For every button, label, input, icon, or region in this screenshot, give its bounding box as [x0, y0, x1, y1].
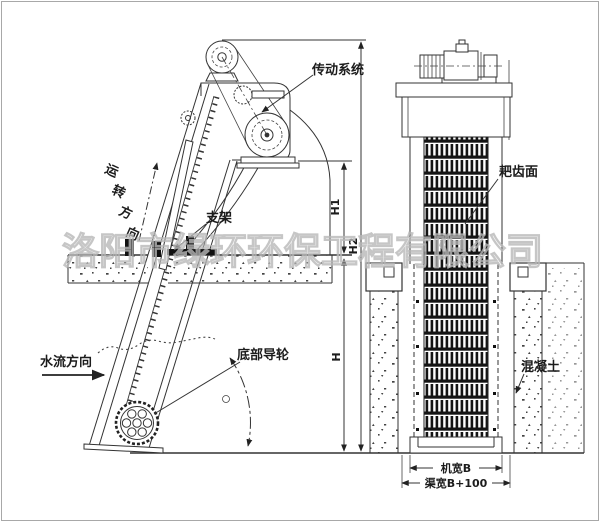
dim-h1: H1 [329, 199, 342, 216]
label-drive-system: 传动系统 [311, 62, 364, 78]
technical-drawing: H1 H H2 传动系统 支架 底部导轮 水流方向 运 转 方 向 [0, 0, 600, 522]
dim-channel-width: 渠宽B+100 [425, 476, 488, 490]
rake-teeth-face [424, 137, 488, 437]
label-rake-face: 耙齿面 [499, 164, 538, 180]
label-bottom-guide-wheel: 底部导轮 [237, 347, 289, 363]
label-concrete: 混凝土 [521, 359, 560, 375]
dim-h: H [330, 352, 343, 361]
screen-body [410, 137, 502, 453]
bottom-guide-wheel [116, 402, 158, 444]
company-watermark: 洛阳市绿环环保工程有限公司 [62, 230, 543, 273]
label-support: 支架 [205, 210, 232, 226]
screen-head-box [396, 83, 512, 137]
drawing-canvas: H1 H H2 传动系统 支架 底部导轮 水流方向 运 转 方 向 [0, 0, 600, 522]
dim-machine-width: 机宽B [441, 461, 471, 475]
label-water-flow: 水流方向 [40, 354, 92, 370]
